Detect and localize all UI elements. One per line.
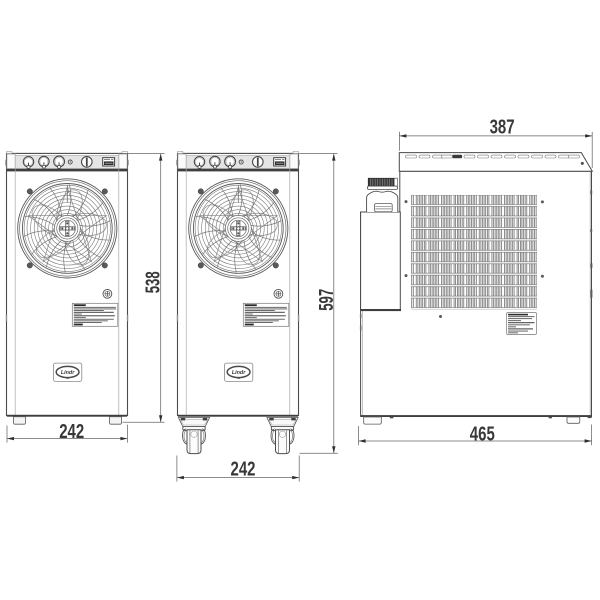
svg-text:538: 538 — [142, 271, 164, 293]
svg-text:465: 465 — [470, 423, 495, 445]
svg-text:242: 242 — [59, 421, 84, 443]
svg-text:387: 387 — [490, 116, 515, 138]
svg-text:242: 242 — [231, 459, 256, 481]
svg-text:597: 597 — [316, 289, 338, 311]
